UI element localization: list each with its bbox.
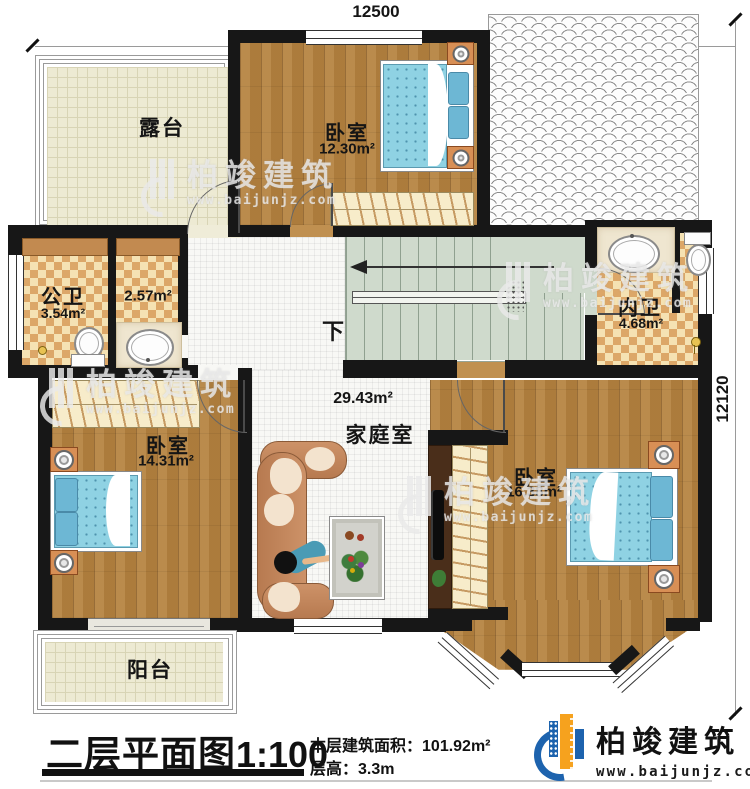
family-room-area: 29.43m²: [333, 390, 393, 408]
brand-logo-building: [549, 721, 558, 757]
public-bath-window: [8, 255, 24, 350]
floor-area-value: 101.92m²: [422, 738, 491, 755]
floor-stats: 本层建筑面积：101.92m² 层高：3.3m: [310, 735, 491, 781]
pillow: [55, 478, 78, 512]
inner-bath-door-threshold: [585, 268, 597, 315]
pillow: [448, 72, 469, 105]
wall: [698, 378, 712, 622]
bedroom-right-area: 16.38m²: [506, 484, 562, 501]
wall: [343, 360, 457, 378]
nightstand: [648, 441, 680, 469]
bedroom-top-door-leaf: [331, 183, 333, 226]
brand-logo-building: [560, 714, 573, 769]
bedroom-right-door-leaf: [503, 380, 505, 432]
hallway-floor: [188, 237, 345, 378]
bedroom-left-door-threshold: [197, 365, 238, 380]
bedroom-top-area: 12.30m²: [319, 141, 375, 158]
tv-icon: [431, 490, 444, 560]
fruit-icon: [357, 534, 364, 541]
floor-height-value: 3.3m: [358, 761, 394, 778]
wall: [8, 225, 185, 238]
fruit-icon: [345, 531, 354, 540]
wall: [505, 360, 597, 378]
bath-counter: [116, 238, 180, 256]
brand-url: www.baijunjz.com: [596, 764, 750, 780]
shower-stem: [694, 345, 695, 354]
wardrobe: [452, 445, 488, 609]
floor-plan-canvas: 12500 12120: [0, 0, 750, 789]
brand-logo-building: [575, 729, 584, 759]
brand-logo-icon: [534, 712, 588, 784]
wall: [238, 618, 294, 632]
nightstand: [50, 550, 78, 575]
stair-direction-line: [366, 266, 554, 268]
inner-bath-area: 4.68m²: [619, 315, 663, 331]
nightstand: [50, 447, 78, 472]
lamp-icon: [654, 569, 674, 589]
nightstand: [648, 565, 680, 593]
toilet-tank: [71, 354, 105, 367]
floor-area-label: 本层建筑面积：: [310, 738, 422, 755]
flower-icon: [350, 568, 355, 573]
sofa-cushion: [268, 582, 300, 612]
lamp-icon: [54, 450, 74, 470]
pillow: [650, 519, 673, 561]
terrace-label: 露台: [139, 112, 185, 142]
family-room-label: 家庭室: [346, 419, 415, 449]
wall: [240, 225, 290, 237]
wall: [428, 430, 508, 445]
bay-post: [438, 618, 472, 631]
nightstand: [447, 146, 474, 169]
faucet-icon: [630, 234, 634, 238]
bay-window-bottom: [522, 662, 620, 677]
wall: [333, 225, 585, 237]
dimension-top-label: 12500: [352, 2, 399, 22]
wall: [382, 618, 446, 632]
flower-icon: [348, 556, 354, 562]
nightstand: [447, 42, 474, 65]
pillow: [448, 106, 469, 139]
toilet-bowl: [686, 244, 711, 276]
floor-drain-icon: [38, 346, 47, 355]
lamp-icon: [54, 553, 74, 573]
dimension-right-label: 12120: [713, 375, 733, 422]
washroom-sink: [126, 329, 174, 366]
wardrobe: [330, 192, 474, 226]
family-room-window: [294, 618, 382, 634]
stair-arrow-icon: [350, 260, 367, 274]
roof-tile-area: [488, 14, 699, 229]
bedroom-left-door-leaf: [243, 380, 245, 432]
bedroom-top-window: [306, 30, 422, 45]
terrace-door-leaf: [238, 180, 240, 233]
faucet-icon: [146, 358, 150, 362]
bed-sheet: [106, 475, 130, 546]
sofa-cushion: [270, 458, 302, 494]
flower-icon: [358, 562, 364, 568]
bedroom-right-door-threshold: [457, 362, 505, 378]
brand-name: 柏竣建筑: [596, 717, 750, 761]
inner-bath-sink: [608, 235, 660, 273]
lamp-icon: [654, 445, 674, 465]
wall: [108, 238, 116, 365]
lamp-icon: [452, 45, 469, 62]
public-bath-area: 3.54m²: [41, 305, 85, 321]
pillow: [55, 512, 78, 546]
bay-post: [666, 618, 700, 631]
washroom-area: 2.57m²: [124, 288, 172, 305]
stair-handrail: [352, 291, 526, 304]
wall: [477, 30, 490, 237]
stair-down-label: 下: [322, 314, 344, 346]
person-head: [274, 551, 297, 574]
stair-rail-end-dots: [506, 280, 524, 312]
floor-height-label: 层高：: [310, 761, 358, 778]
dimension-line-right: [735, 22, 736, 716]
sofa-cushion: [264, 494, 294, 526]
shower-drain-icon: [691, 337, 701, 347]
balcony-label: 阳台: [127, 654, 173, 684]
lamp-icon: [452, 149, 469, 166]
pillow: [650, 476, 673, 518]
sofa-cushion: [305, 447, 335, 471]
bedroom-left-area: 14.31m²: [138, 453, 194, 470]
bath-counter: [22, 238, 108, 256]
wardrobe: [52, 380, 200, 428]
flower-bouquet-icon: [340, 548, 370, 582]
wall: [585, 220, 597, 268]
brand-block: 柏竣建筑 www.baijunjz.com: [534, 712, 750, 784]
title-underline-thick: [42, 769, 304, 776]
wall: [585, 365, 712, 378]
